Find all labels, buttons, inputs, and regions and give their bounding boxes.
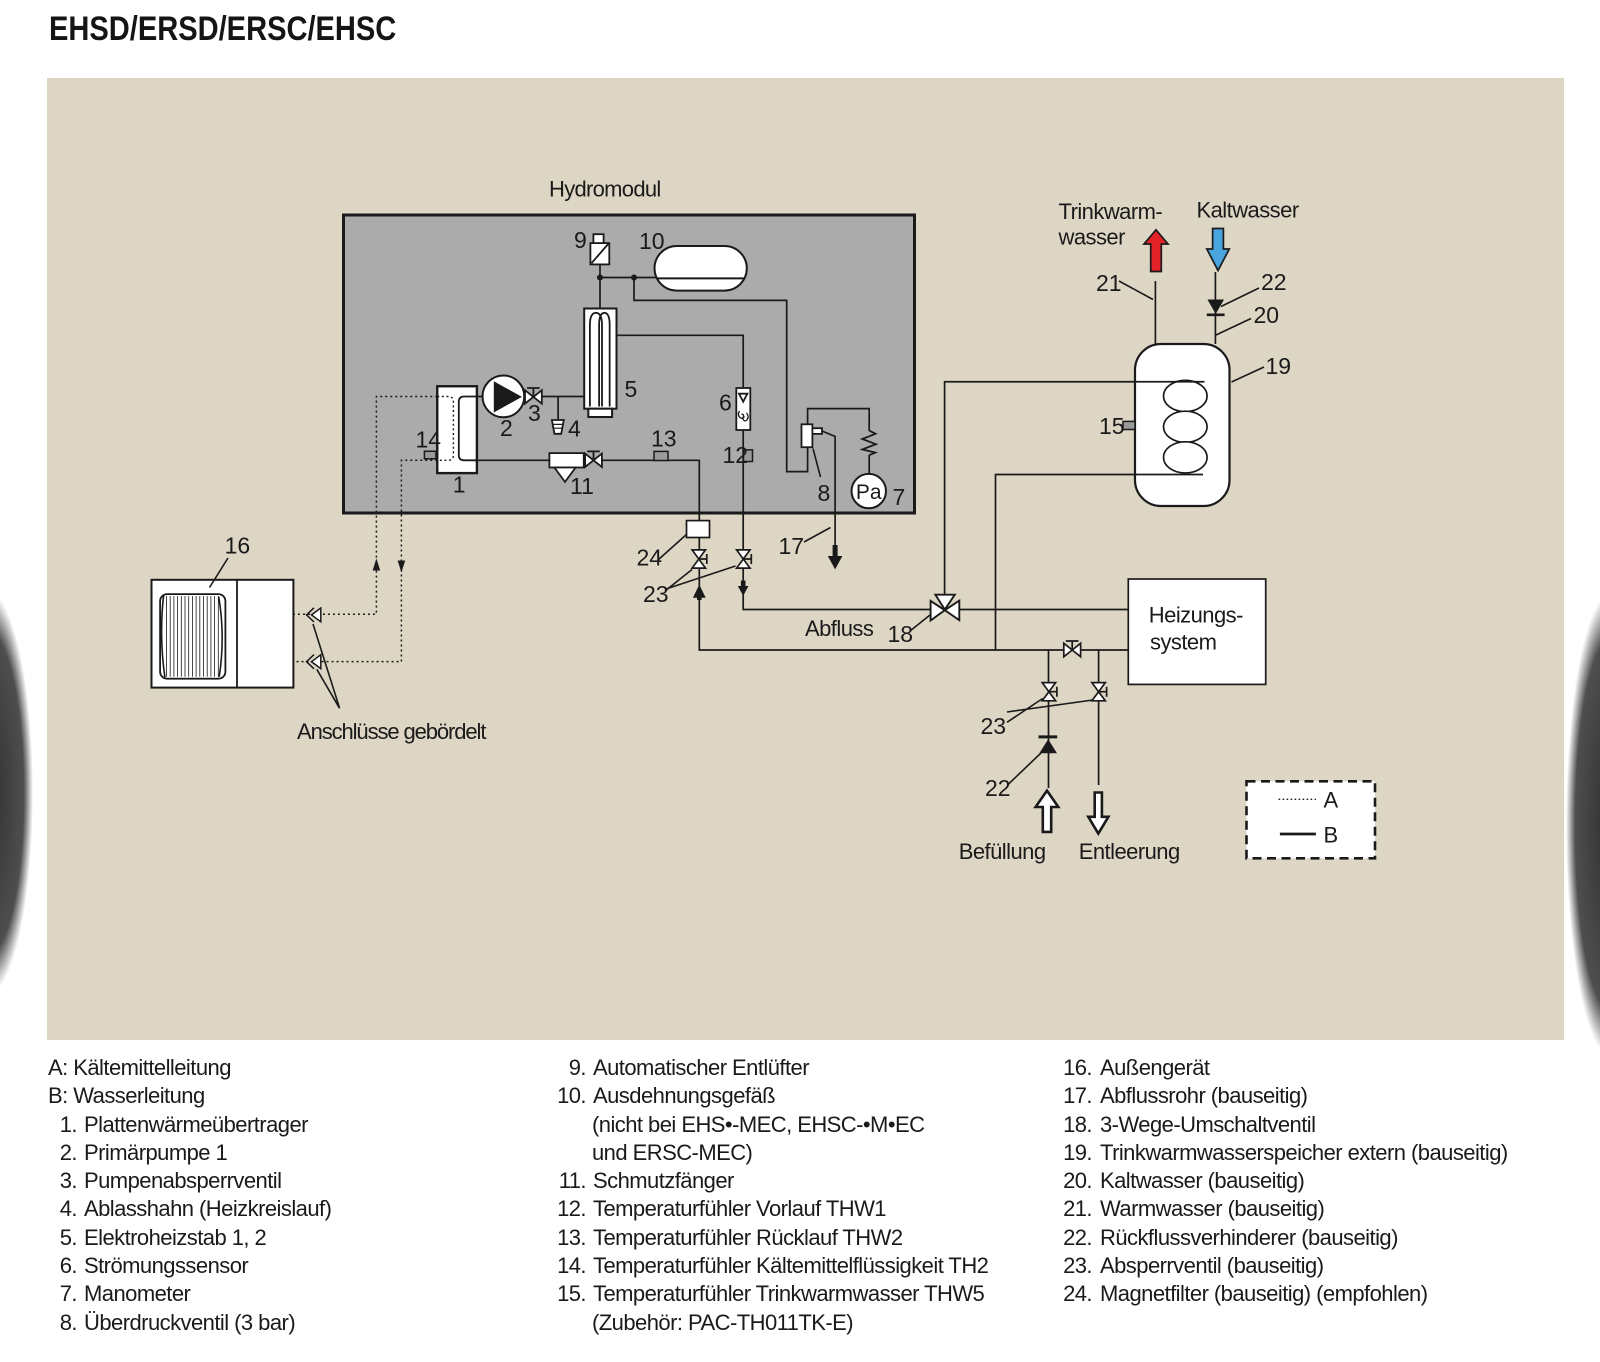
svg-text:24: 24 — [637, 545, 663, 571]
svg-text:3: 3 — [528, 400, 541, 426]
svg-text:20: 20 — [1254, 302, 1280, 328]
svg-text:9: 9 — [574, 227, 587, 253]
svg-text:18: 18 — [888, 621, 914, 647]
svg-text:15: 15 — [1099, 413, 1125, 439]
svg-text:16: 16 — [225, 533, 251, 559]
svg-text:19: 19 — [1266, 353, 1292, 379]
svg-text:13: 13 — [651, 426, 677, 452]
svg-text:7: 7 — [893, 484, 906, 510]
svg-text:17: 17 — [779, 533, 805, 559]
svg-text:Trinkwarm-: Trinkwarm- — [1059, 199, 1163, 224]
svg-text:Heizungs-: Heizungs- — [1149, 603, 1243, 628]
svg-text:Anschlüsse gebördelt: Anschlüsse gebördelt — [297, 719, 486, 744]
svg-text:5: 5 — [625, 376, 638, 402]
svg-text:A: A — [1324, 788, 1339, 813]
svg-text:Entleerung: Entleerung — [1079, 839, 1180, 864]
svg-text:Abfluss: Abfluss — [805, 616, 874, 641]
svg-text:2: 2 — [500, 415, 513, 441]
svg-text:1: 1 — [453, 472, 466, 498]
svg-text:21: 21 — [1096, 270, 1122, 296]
svg-text:Befüllung: Befüllung — [959, 839, 1046, 864]
svg-text:23: 23 — [643, 581, 669, 607]
svg-text:14: 14 — [416, 427, 442, 453]
svg-text:11: 11 — [570, 473, 594, 499]
svg-text:Pa: Pa — [856, 481, 882, 504]
svg-text:system: system — [1150, 630, 1216, 655]
svg-text:Hydromodul: Hydromodul — [549, 177, 661, 202]
svg-text:10: 10 — [639, 228, 665, 254]
svg-text:12: 12 — [723, 442, 749, 468]
svg-text:4: 4 — [568, 416, 581, 442]
svg-text:23: 23 — [981, 713, 1007, 739]
svg-text:6: 6 — [719, 390, 732, 416]
svg-text:wasser: wasser — [1058, 225, 1126, 250]
svg-text:22: 22 — [985, 775, 1011, 801]
svg-text:B: B — [1324, 823, 1338, 848]
svg-text:Kaltwasser: Kaltwasser — [1197, 198, 1299, 223]
svg-text:8: 8 — [818, 480, 831, 506]
svg-text:22: 22 — [1261, 269, 1287, 295]
